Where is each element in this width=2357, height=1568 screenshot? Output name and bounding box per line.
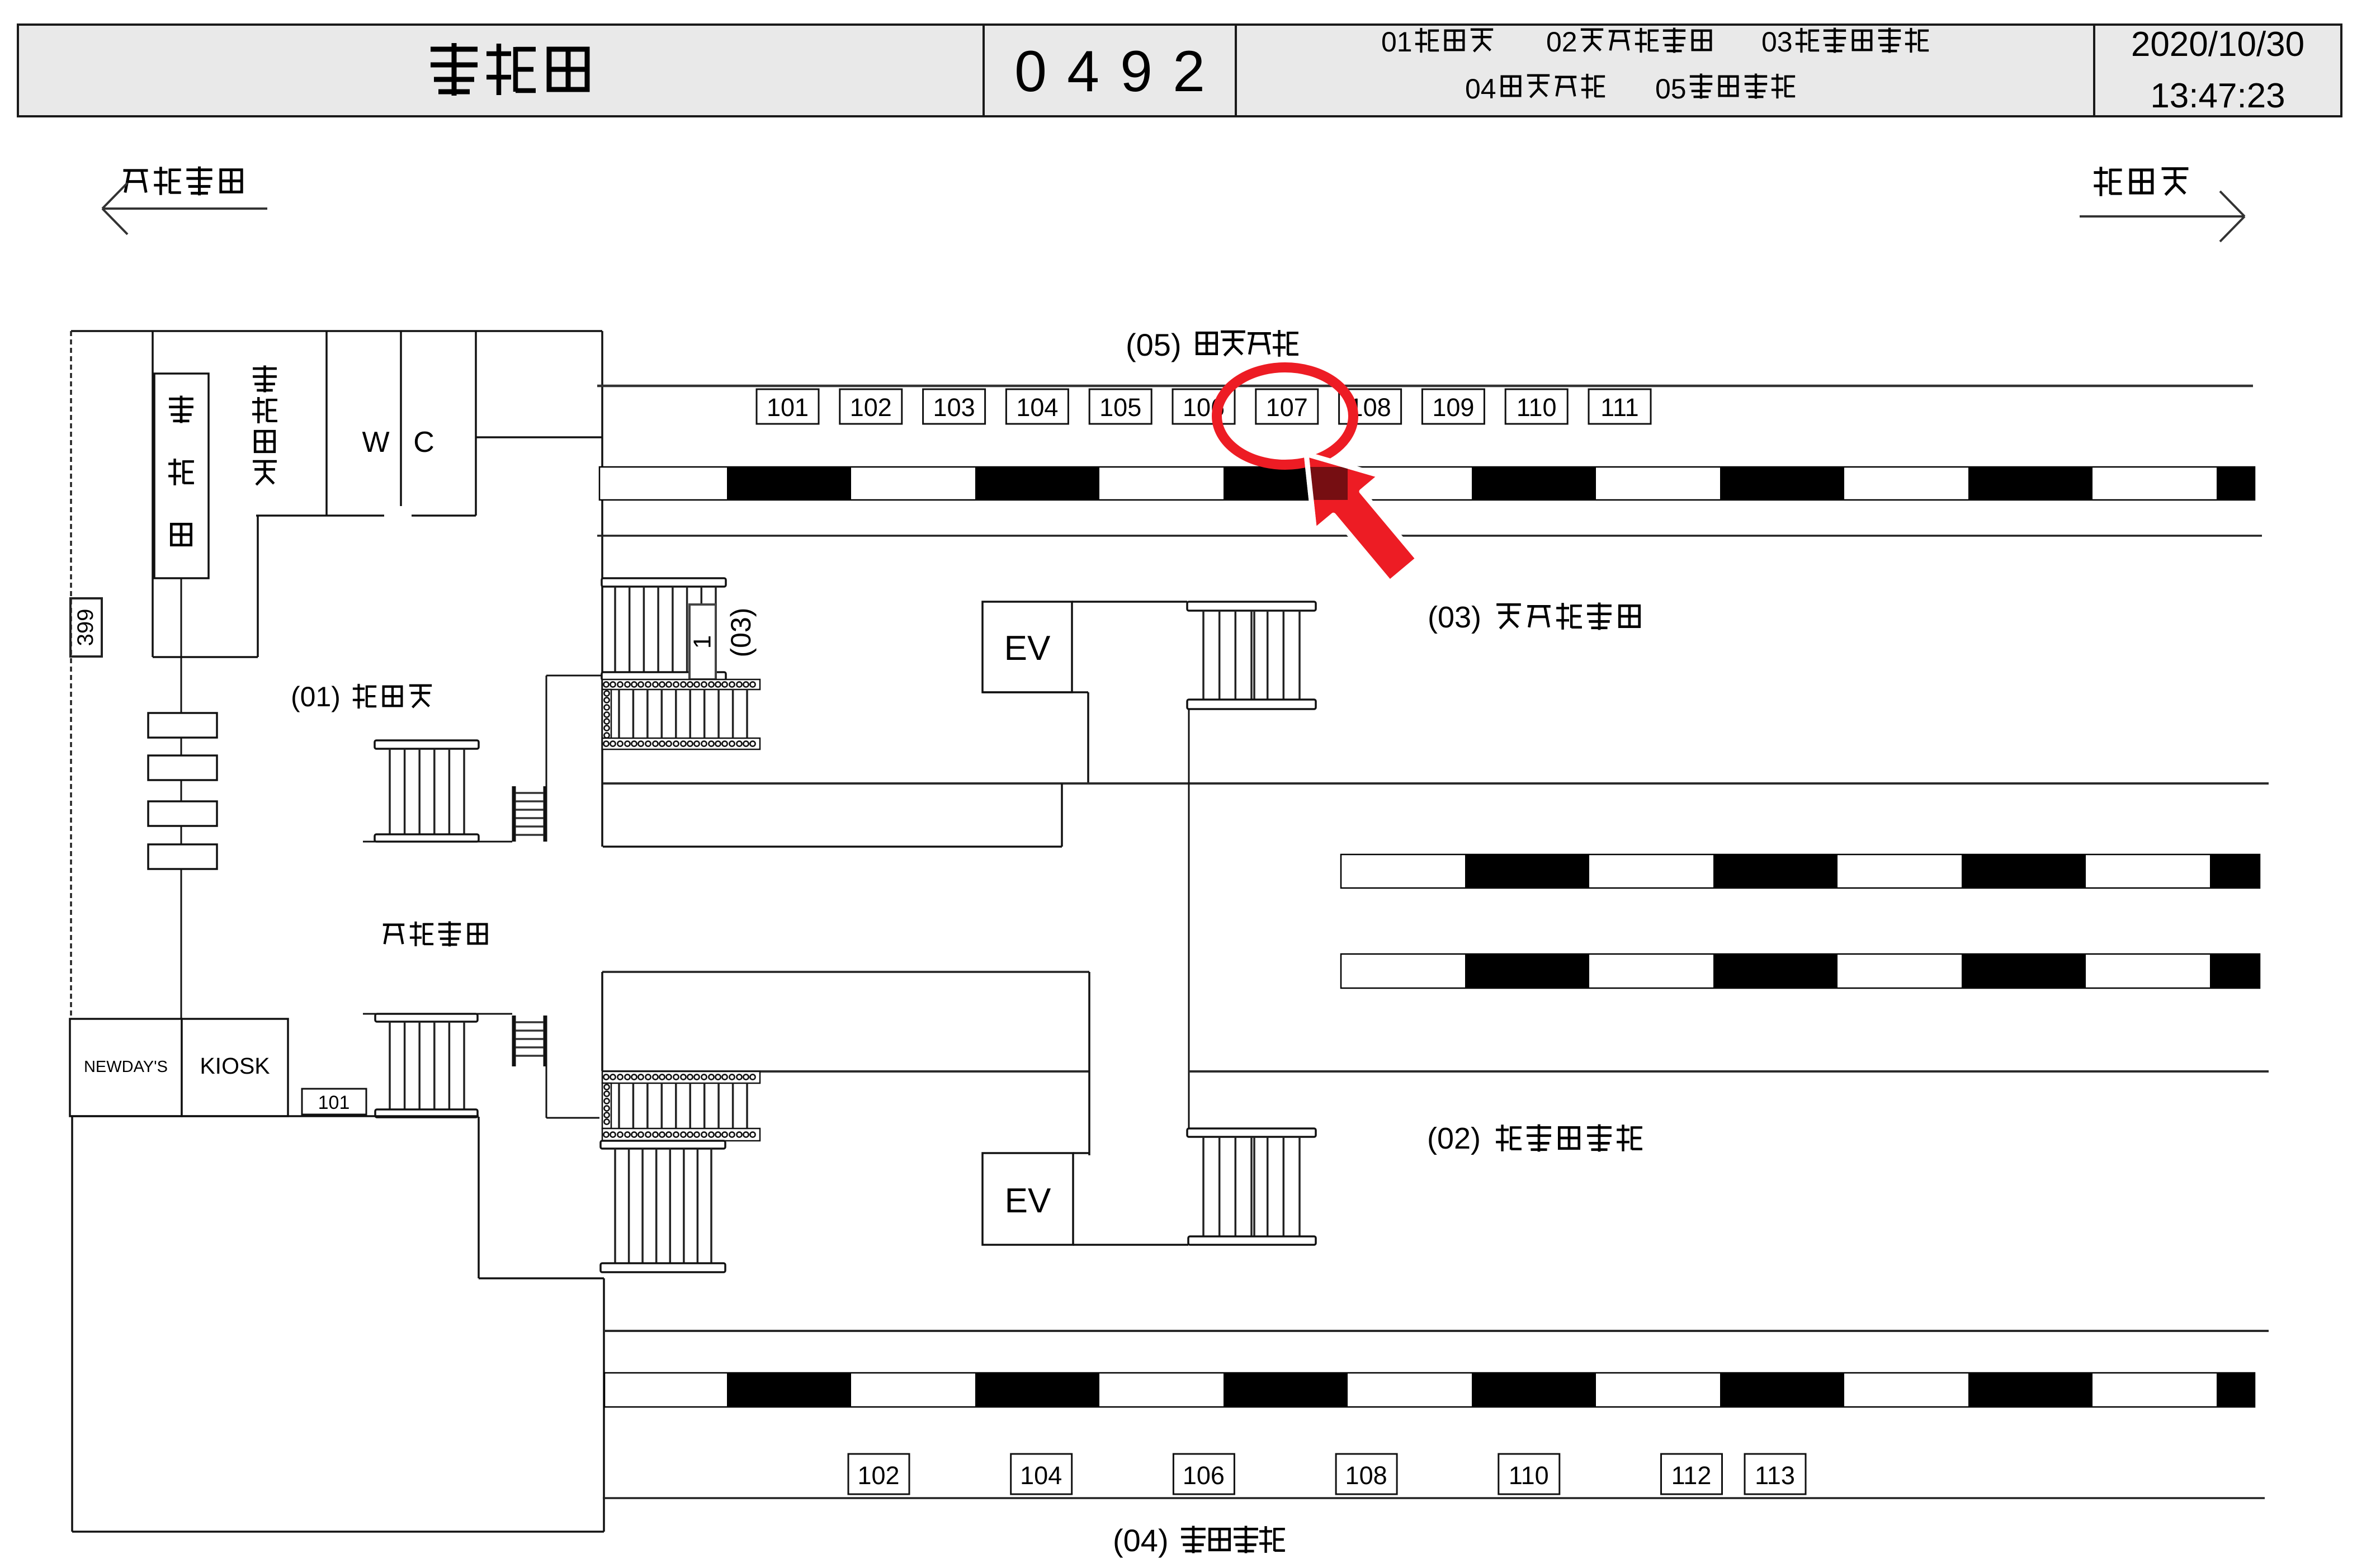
svg-text:W: W xyxy=(362,426,389,459)
svg-text:107: 107 xyxy=(1266,393,1308,422)
svg-text:110: 110 xyxy=(1509,1461,1549,1490)
svg-text:399: 399 xyxy=(73,609,98,646)
svg-text:9: 9 xyxy=(1120,39,1152,104)
svg-text:01: 01 xyxy=(1381,26,1413,58)
svg-text:(02): (02) xyxy=(1427,1122,1481,1155)
svg-text:4: 4 xyxy=(1067,39,1099,104)
svg-text:102: 102 xyxy=(857,1461,899,1490)
svg-text:105: 105 xyxy=(1099,393,1141,422)
svg-text:0: 0 xyxy=(1014,39,1047,104)
svg-text:(04): (04) xyxy=(1113,1523,1169,1558)
svg-text:03: 03 xyxy=(1761,26,1793,58)
svg-text:C: C xyxy=(413,426,434,459)
svg-text:101: 101 xyxy=(767,393,809,422)
svg-text:101: 101 xyxy=(318,1092,350,1113)
svg-text:110: 110 xyxy=(1517,393,1557,422)
svg-text:EV: EV xyxy=(1005,1182,1051,1220)
svg-text:13:47:23: 13:47:23 xyxy=(2150,77,2285,115)
svg-text:109: 109 xyxy=(1432,393,1474,422)
svg-text:02: 02 xyxy=(1546,26,1577,58)
svg-text:112: 112 xyxy=(1671,1461,1712,1490)
svg-text:2020/10/30: 2020/10/30 xyxy=(2131,25,2304,64)
svg-text:(01): (01) xyxy=(291,681,341,712)
svg-text:04: 04 xyxy=(1465,73,1496,105)
svg-text:(03): (03) xyxy=(1428,601,1481,634)
svg-text:EV: EV xyxy=(1004,629,1051,668)
svg-text:113: 113 xyxy=(1755,1461,1795,1490)
svg-text:104: 104 xyxy=(1016,393,1058,422)
svg-text:KIOSK: KIOSK xyxy=(200,1053,270,1079)
svg-text:2: 2 xyxy=(1173,39,1205,104)
svg-text:104: 104 xyxy=(1020,1461,1062,1490)
svg-text:103: 103 xyxy=(933,393,975,422)
svg-text:106: 106 xyxy=(1183,1461,1225,1490)
svg-text:(05): (05) xyxy=(1126,327,1182,362)
svg-text:111: 111 xyxy=(1600,393,1638,422)
svg-text:1: 1 xyxy=(689,635,716,649)
svg-text:108: 108 xyxy=(1345,1461,1387,1490)
svg-text:102: 102 xyxy=(850,393,892,422)
svg-text:NEWDAY'S: NEWDAY'S xyxy=(84,1058,168,1076)
svg-text:(03): (03) xyxy=(725,608,757,658)
svg-text:05: 05 xyxy=(1655,73,1687,105)
